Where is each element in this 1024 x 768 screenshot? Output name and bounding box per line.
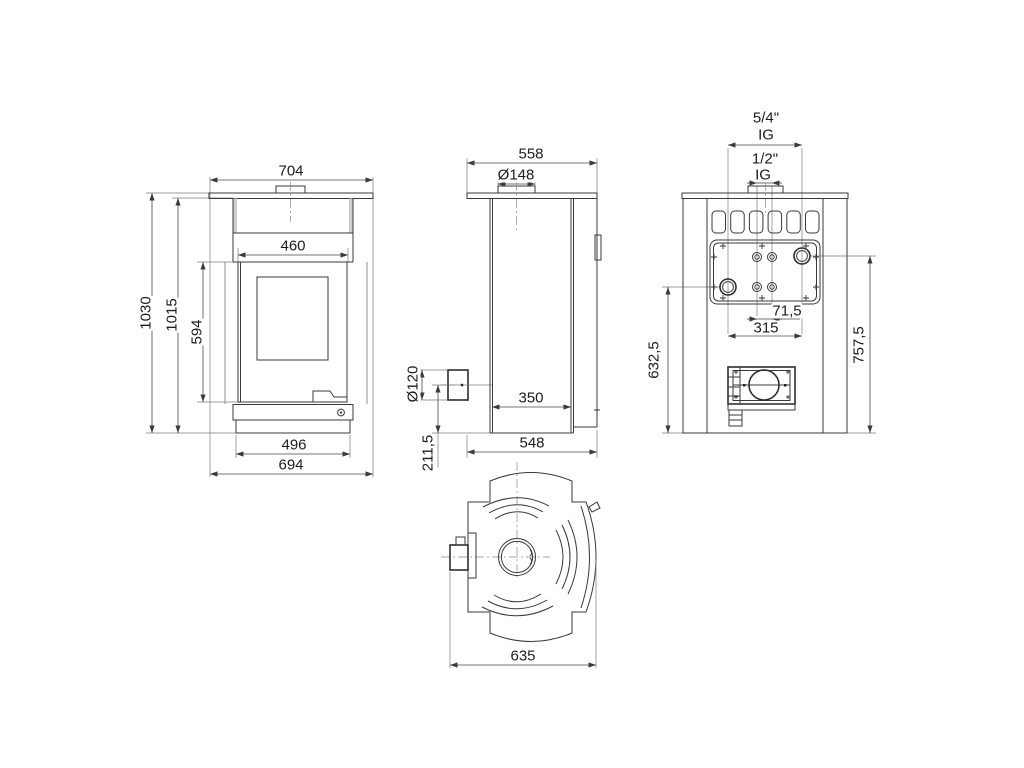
dim-front-body-height: 1015: [165, 297, 180, 332]
dim-side-top-depth: 558: [517, 147, 544, 162]
dim-top-total-depth: 635: [509, 649, 536, 664]
side-view: [418, 158, 601, 468]
rear-top-plate: [682, 193, 848, 199]
front-side-panels: [225, 262, 367, 404]
dim-front-base-width: 694: [277, 458, 304, 473]
stove-door: [238, 262, 347, 402]
dim-front-opening-width: 460: [279, 239, 306, 254]
dim-rear-conn-spacing: 315: [752, 321, 779, 336]
dim-rear-flow-height: 757,5: [852, 325, 867, 365]
front-right-panel-edge: [349, 199, 353, 234]
dim-side-rear-flue-height: 211,5: [421, 434, 436, 472]
door-handle-top: [589, 502, 600, 512]
dim-side-base-depth: 548: [518, 436, 545, 451]
dim-rear-return-height: 632,5: [647, 340, 662, 380]
dim-front-plinth-width: 496: [280, 438, 307, 453]
dim-front-door-height: 594: [190, 318, 205, 345]
rear-dimension-lines: [668, 145, 870, 433]
side-extension-lines: [418, 158, 597, 468]
dim-side-collar-diameter: Ø148: [497, 168, 536, 183]
door-handle-side: [595, 235, 601, 260]
side-top-plate: [467, 193, 597, 199]
top-rear-outlet-tab: [456, 537, 465, 545]
dim-rear-sensor-conn-thread: IG: [754, 168, 772, 183]
door-window: [257, 277, 328, 360]
dim-side-firebox-depth: 350: [517, 391, 544, 406]
dim-rear-sensor-spacing: 71,5: [771, 304, 802, 319]
connection-panel: [710, 240, 820, 304]
flue-outlet-shelf: [728, 404, 795, 410]
side-door-curve-profile: [594, 199, 600, 428]
top-view: [441, 462, 600, 668]
rear-flue-outlet: [728, 367, 795, 426]
front-top-plate: [209, 193, 373, 199]
control-knob-center: [340, 411, 342, 413]
dim-front-top-width: 704: [277, 164, 304, 179]
top-rear-outlet-plate: [468, 533, 476, 578]
dim-rear-sensor-conn-size: 1/2": [751, 152, 779, 167]
front-drawer-band: [233, 405, 353, 421]
dim-side-rear-flue-diameter: Ø120: [406, 365, 421, 404]
front-dimension-lines: [152, 180, 373, 474]
rear-view: [662, 145, 876, 433]
front-left-panel-edge: [233, 199, 237, 234]
flue-outlet-bracket: [729, 410, 742, 426]
dim-rear-flow-conn-thread: IG: [757, 128, 775, 143]
dim-front-total-height: 1030: [139, 295, 154, 330]
top-rear-outlet: [450, 545, 468, 570]
door-inner-arc: [581, 506, 590, 608]
front-plinth: [236, 420, 350, 433]
technical-drawing-canvas: 704 460 1030 1015 594 496 694 558 Ø148 Ø…: [0, 0, 1024, 768]
rear-body-outline: [683, 199, 847, 434]
ash-lip: [313, 391, 347, 402]
dim-rear-flow-conn-size: 5/4": [752, 111, 780, 126]
flue-outlet-center-mark: [461, 384, 463, 386]
